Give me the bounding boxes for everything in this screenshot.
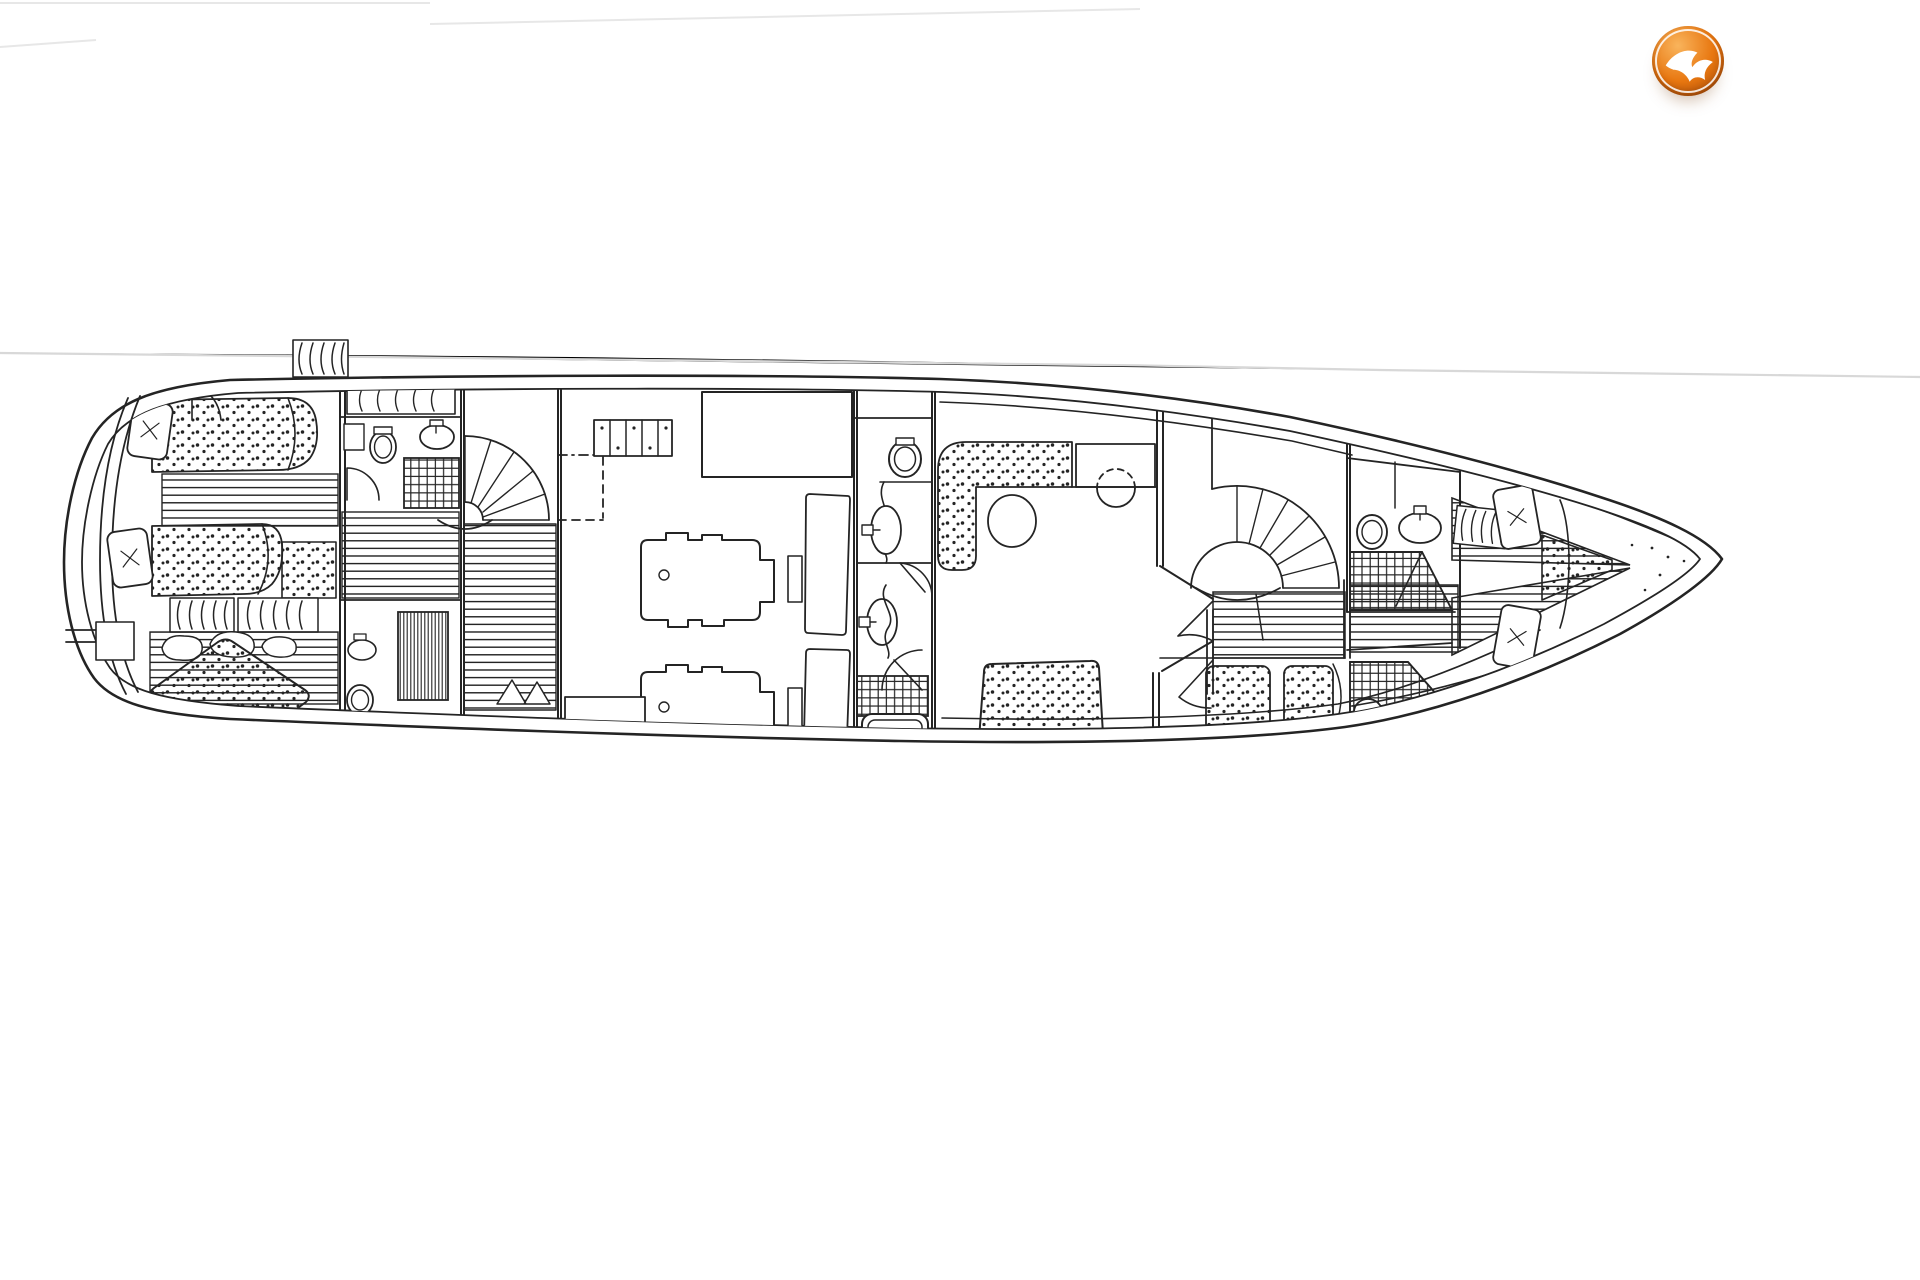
deck-plan-sheet	[0, 0, 1920, 1280]
door-swing	[900, 563, 932, 597]
aft-bathroom	[340, 386, 461, 715]
door-swing	[347, 468, 379, 500]
bathtub	[862, 714, 928, 748]
louvre-door	[398, 612, 448, 700]
twin-berth	[1206, 666, 1270, 742]
tank-port	[805, 494, 850, 635]
pillow	[106, 527, 153, 588]
engine-room	[558, 392, 852, 759]
shower-grid	[404, 458, 459, 508]
sideboard	[1076, 444, 1155, 487]
scan-artifact-lines	[0, 3, 1920, 377]
aft-owners-cabin	[92, 386, 338, 751]
port-engine	[641, 533, 802, 627]
landing-planking	[342, 512, 459, 598]
night-stand	[282, 542, 336, 598]
deck-vent-louvres	[293, 340, 348, 377]
scanned-page: { "page": { "kind": "scanned yacht deck …	[0, 0, 1920, 1280]
washbasin	[1399, 506, 1441, 543]
tank-starboard	[804, 649, 850, 742]
dinette-table	[988, 495, 1036, 547]
brand-logo	[1652, 26, 1724, 96]
bow-stipple	[1631, 544, 1686, 592]
shower-grid	[857, 676, 928, 716]
day-head-corridor	[854, 418, 932, 748]
washbasin	[862, 506, 901, 554]
starboard-engine	[641, 665, 802, 759]
battery-bank	[594, 420, 672, 456]
radiator-louvres	[170, 598, 318, 632]
transom-step	[96, 622, 134, 660]
master-cabin	[938, 442, 1157, 746]
toilet	[370, 427, 396, 463]
washbasin	[348, 634, 376, 660]
pillow	[126, 399, 173, 460]
seagull-icon	[1652, 26, 1724, 98]
double-berth-master	[979, 661, 1103, 746]
toilet	[347, 685, 373, 715]
twin-berth	[1284, 666, 1333, 736]
toilet	[889, 438, 921, 477]
shower-grid	[1350, 552, 1452, 610]
cabin-floor-planking	[162, 474, 338, 526]
washbasin	[420, 420, 454, 449]
deck-plan-drawing	[0, 0, 1920, 1280]
fuel-tank	[702, 392, 852, 477]
toilet	[1357, 515, 1387, 549]
